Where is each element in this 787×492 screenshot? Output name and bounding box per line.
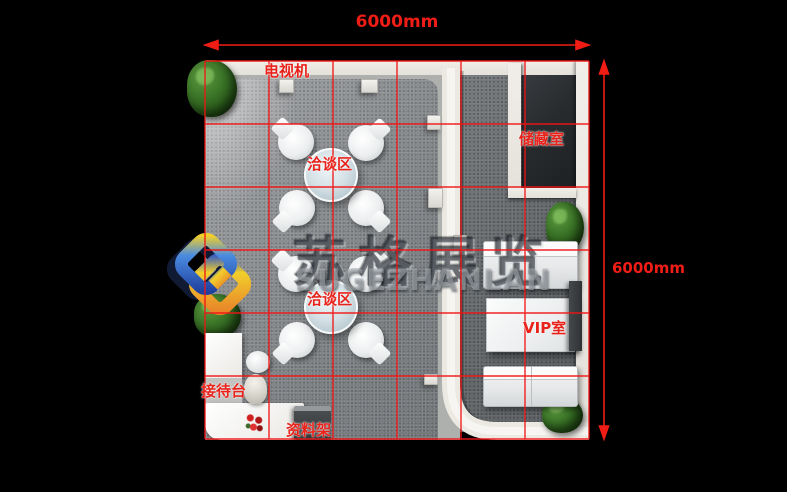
dimension-arrow-top [205,41,589,50]
label-reception-desk: 接待台 [201,383,246,400]
grid-lines [205,61,589,439]
label-meeting-area-2: 洽谈区 [307,291,352,308]
label-storage-room: 储藏室 [519,131,564,148]
label-vip-room: VIP室 [523,320,566,337]
label-tv-wall: 电视机 [264,63,309,80]
grid-overlay [0,0,787,492]
width-dimension-label: 6000mm [337,12,457,32]
height-dimension-label: 6000mm [612,259,685,277]
booth-floor-plan: 苏格展览 SUGEZHANLAN 6000mm 6000mm 电视机 洽谈区 洽… [0,0,787,492]
label-literature-rack: 资料架 [286,422,331,439]
dimension-arrow-right [600,61,609,439]
label-meeting-area-1: 洽谈区 [307,156,352,173]
